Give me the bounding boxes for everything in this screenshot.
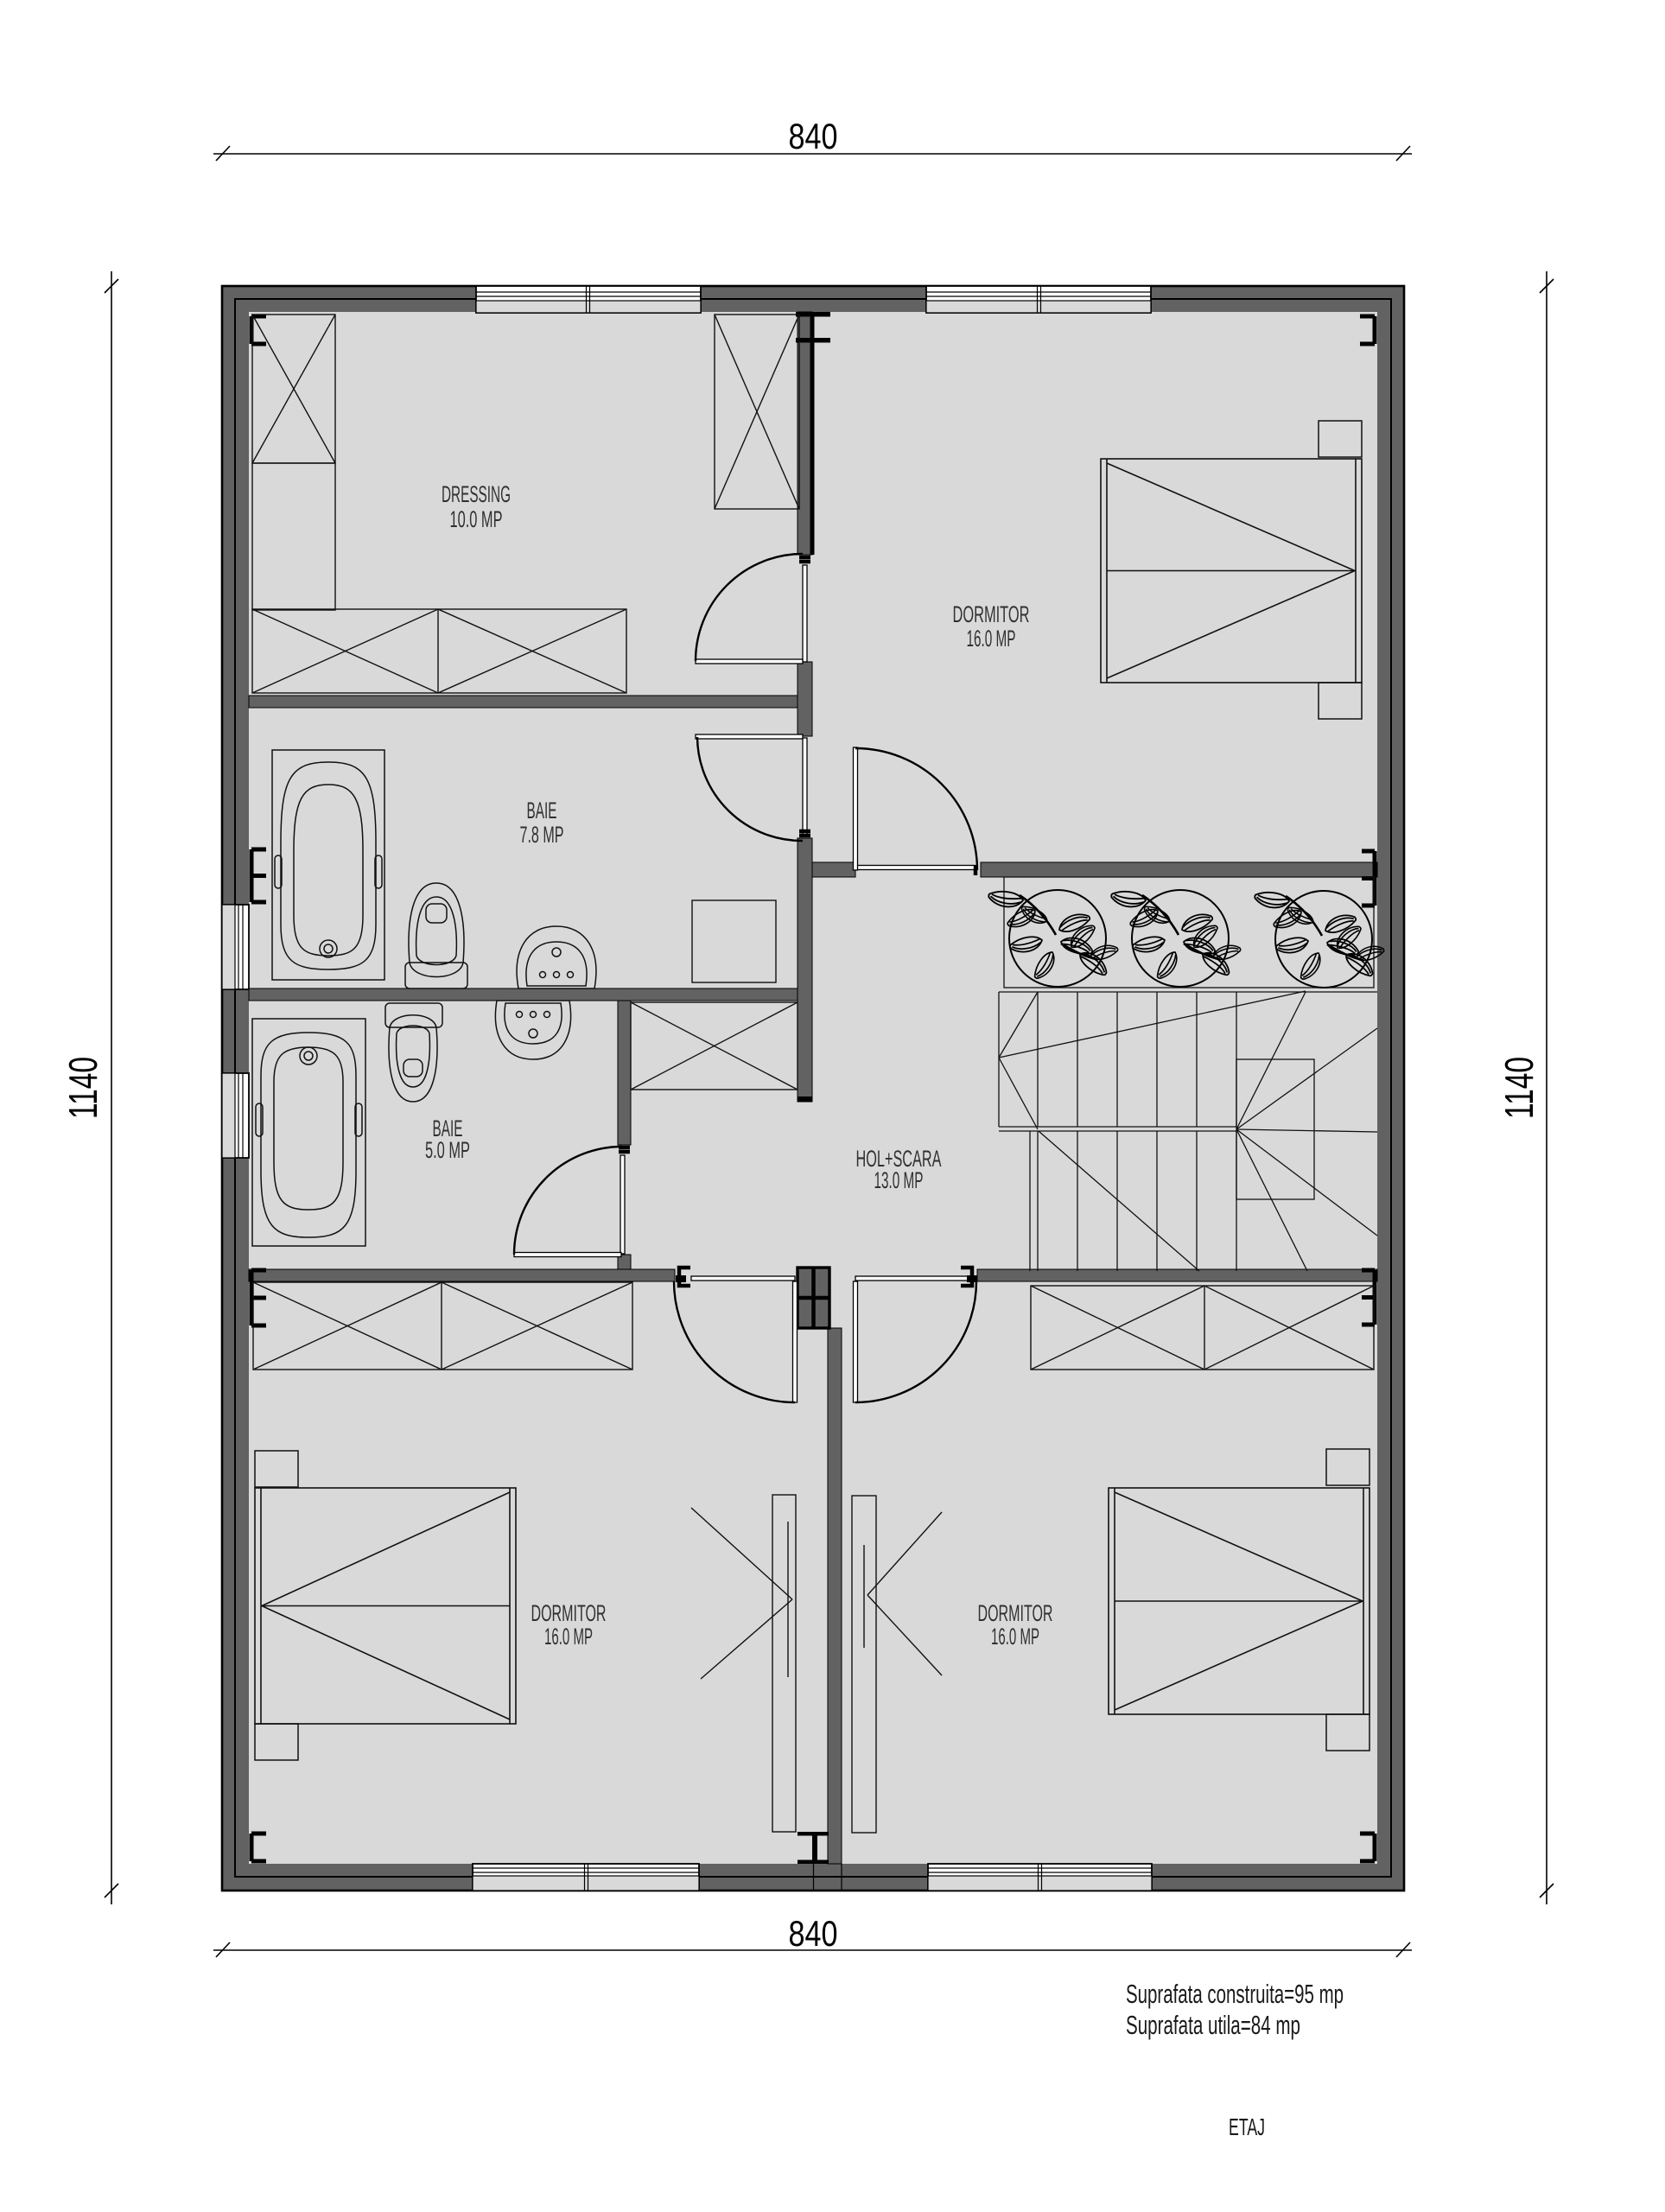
svg-text:Suprafata construita=95 mp: Suprafata construita=95 mp — [1126, 1979, 1344, 2009]
svg-text:ETAJ: ETAJ — [1229, 2113, 1265, 2140]
svg-text:DORMITOR: DORMITOR — [531, 1600, 607, 1626]
svg-text:13.0 MP: 13.0 MP — [874, 1167, 924, 1193]
svg-text:DRESSING: DRESSING — [442, 481, 511, 507]
svg-text:16.0 MP: 16.0 MP — [544, 1624, 593, 1649]
svg-text:10.0 MP: 10.0 MP — [450, 506, 503, 532]
svg-text:840: 840 — [789, 116, 838, 156]
svg-text:1140: 1140 — [1497, 1057, 1541, 1119]
svg-text:Suprafata utila=84 mp: Suprafata utila=84 mp — [1126, 2010, 1300, 2040]
svg-text:5.0 MP: 5.0 MP — [425, 1137, 470, 1163]
svg-text:1140: 1140 — [60, 1057, 105, 1119]
svg-text:BAIE: BAIE — [527, 798, 557, 823]
svg-text:DORMITOR: DORMITOR — [978, 1600, 1053, 1626]
svg-text:16.0 MP: 16.0 MP — [967, 626, 1016, 652]
svg-text:840: 840 — [789, 1913, 838, 1954]
svg-text:DORMITOR: DORMITOR — [953, 601, 1030, 627]
svg-text:7.8 MP: 7.8 MP — [520, 822, 564, 848]
svg-text:16.0 MP: 16.0 MP — [991, 1624, 1039, 1649]
